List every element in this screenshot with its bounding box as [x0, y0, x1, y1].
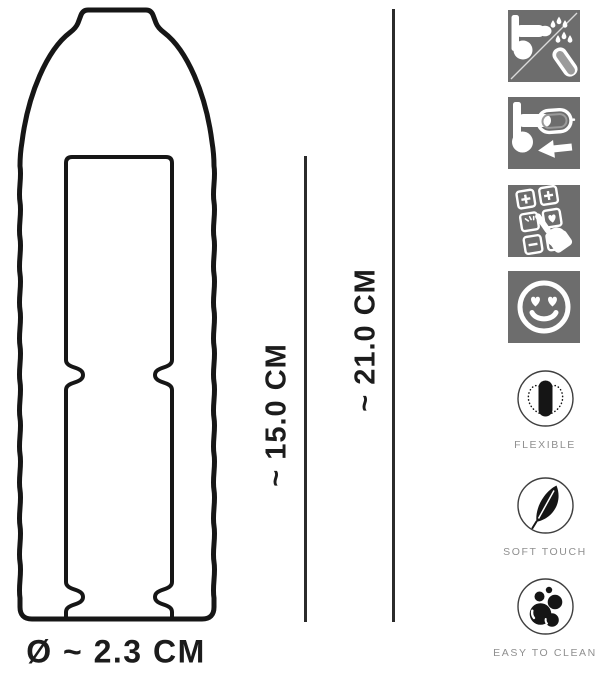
pictogram-mode-selection — [508, 185, 580, 257]
pictogram-lubricant-step — [508, 10, 580, 82]
pictogram-satisfaction — [508, 271, 580, 343]
sleeve-pull-on-arrow-icon — [508, 97, 580, 169]
heart-eyes-smiley-icon — [508, 271, 580, 343]
pictogram-application-step — [508, 97, 580, 169]
bubbles-icon — [517, 578, 574, 635]
feature-easy-to-clean: EASY TO CLEAN — [485, 578, 600, 659]
lubricant-drops-and-sleeve-icon — [508, 10, 580, 82]
dimension-label-insertable-length: ~ 15.0 CM — [261, 343, 294, 487]
feature-flexible: FLEXIBLE — [485, 370, 600, 451]
inner-channel-outline — [66, 157, 172, 619]
product-spec-sheet: ~ 15.0 CM ~ 21.0 CM Ø ~ 2.3 CM — [0, 0, 600, 675]
feather-icon — [517, 477, 574, 534]
dimension-label-total-length: ~ 21.0 CM — [350, 268, 383, 412]
feature-flexible-label: FLEXIBLE — [514, 439, 576, 451]
feature-soft-touch-label: SOFT TOUCH — [503, 546, 587, 558]
outer-body-outline — [19, 10, 214, 619]
dimension-label-diameter: Ø ~ 2.3 CM — [26, 634, 206, 671]
flexible-bending-pill-icon — [517, 370, 574, 427]
feature-easy-to-clean-label: EASY TO CLEAN — [493, 647, 597, 659]
feature-soft-touch: SOFT TOUCH — [485, 477, 600, 558]
button-grid-hand-select-icon — [508, 185, 580, 257]
